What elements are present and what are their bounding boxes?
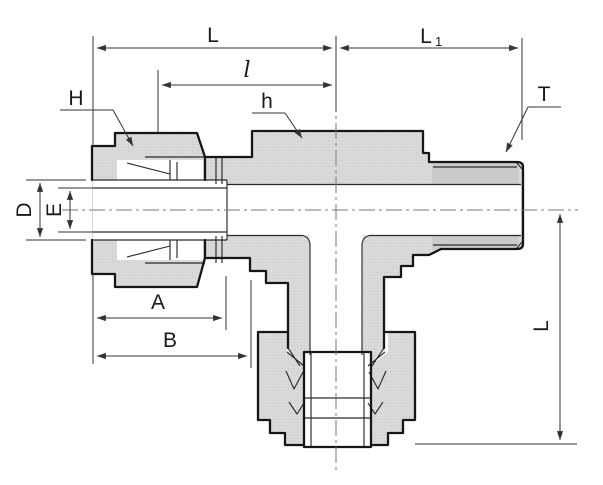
label-L1-main: L (420, 25, 432, 48)
male-branch-tee-cross-section: L L 1 l H h T D E A B L (0, 0, 603, 485)
label-h-body-hex: h (261, 90, 273, 113)
fitting-drawing-canvas: L L 1 l H h T D E A B L (0, 0, 603, 485)
label-H-nut-hex: H (68, 87, 83, 110)
label-B-span: B (163, 329, 177, 352)
label-L1-sub: 1 (435, 34, 442, 49)
thread-band-bottom (432, 236, 519, 249)
label-E-dia: E (43, 203, 66, 217)
label-D-dia: D (13, 202, 36, 217)
branch-tube-stub (304, 352, 371, 447)
label-T-thread: T (538, 83, 551, 106)
label-A-span: A (151, 291, 165, 314)
label-L-top: L (207, 24, 219, 47)
label-L-branch: L (530, 320, 553, 332)
leader-T (506, 107, 528, 152)
thread-band-top (432, 163, 519, 184)
label-l-insertion: l (243, 58, 250, 83)
